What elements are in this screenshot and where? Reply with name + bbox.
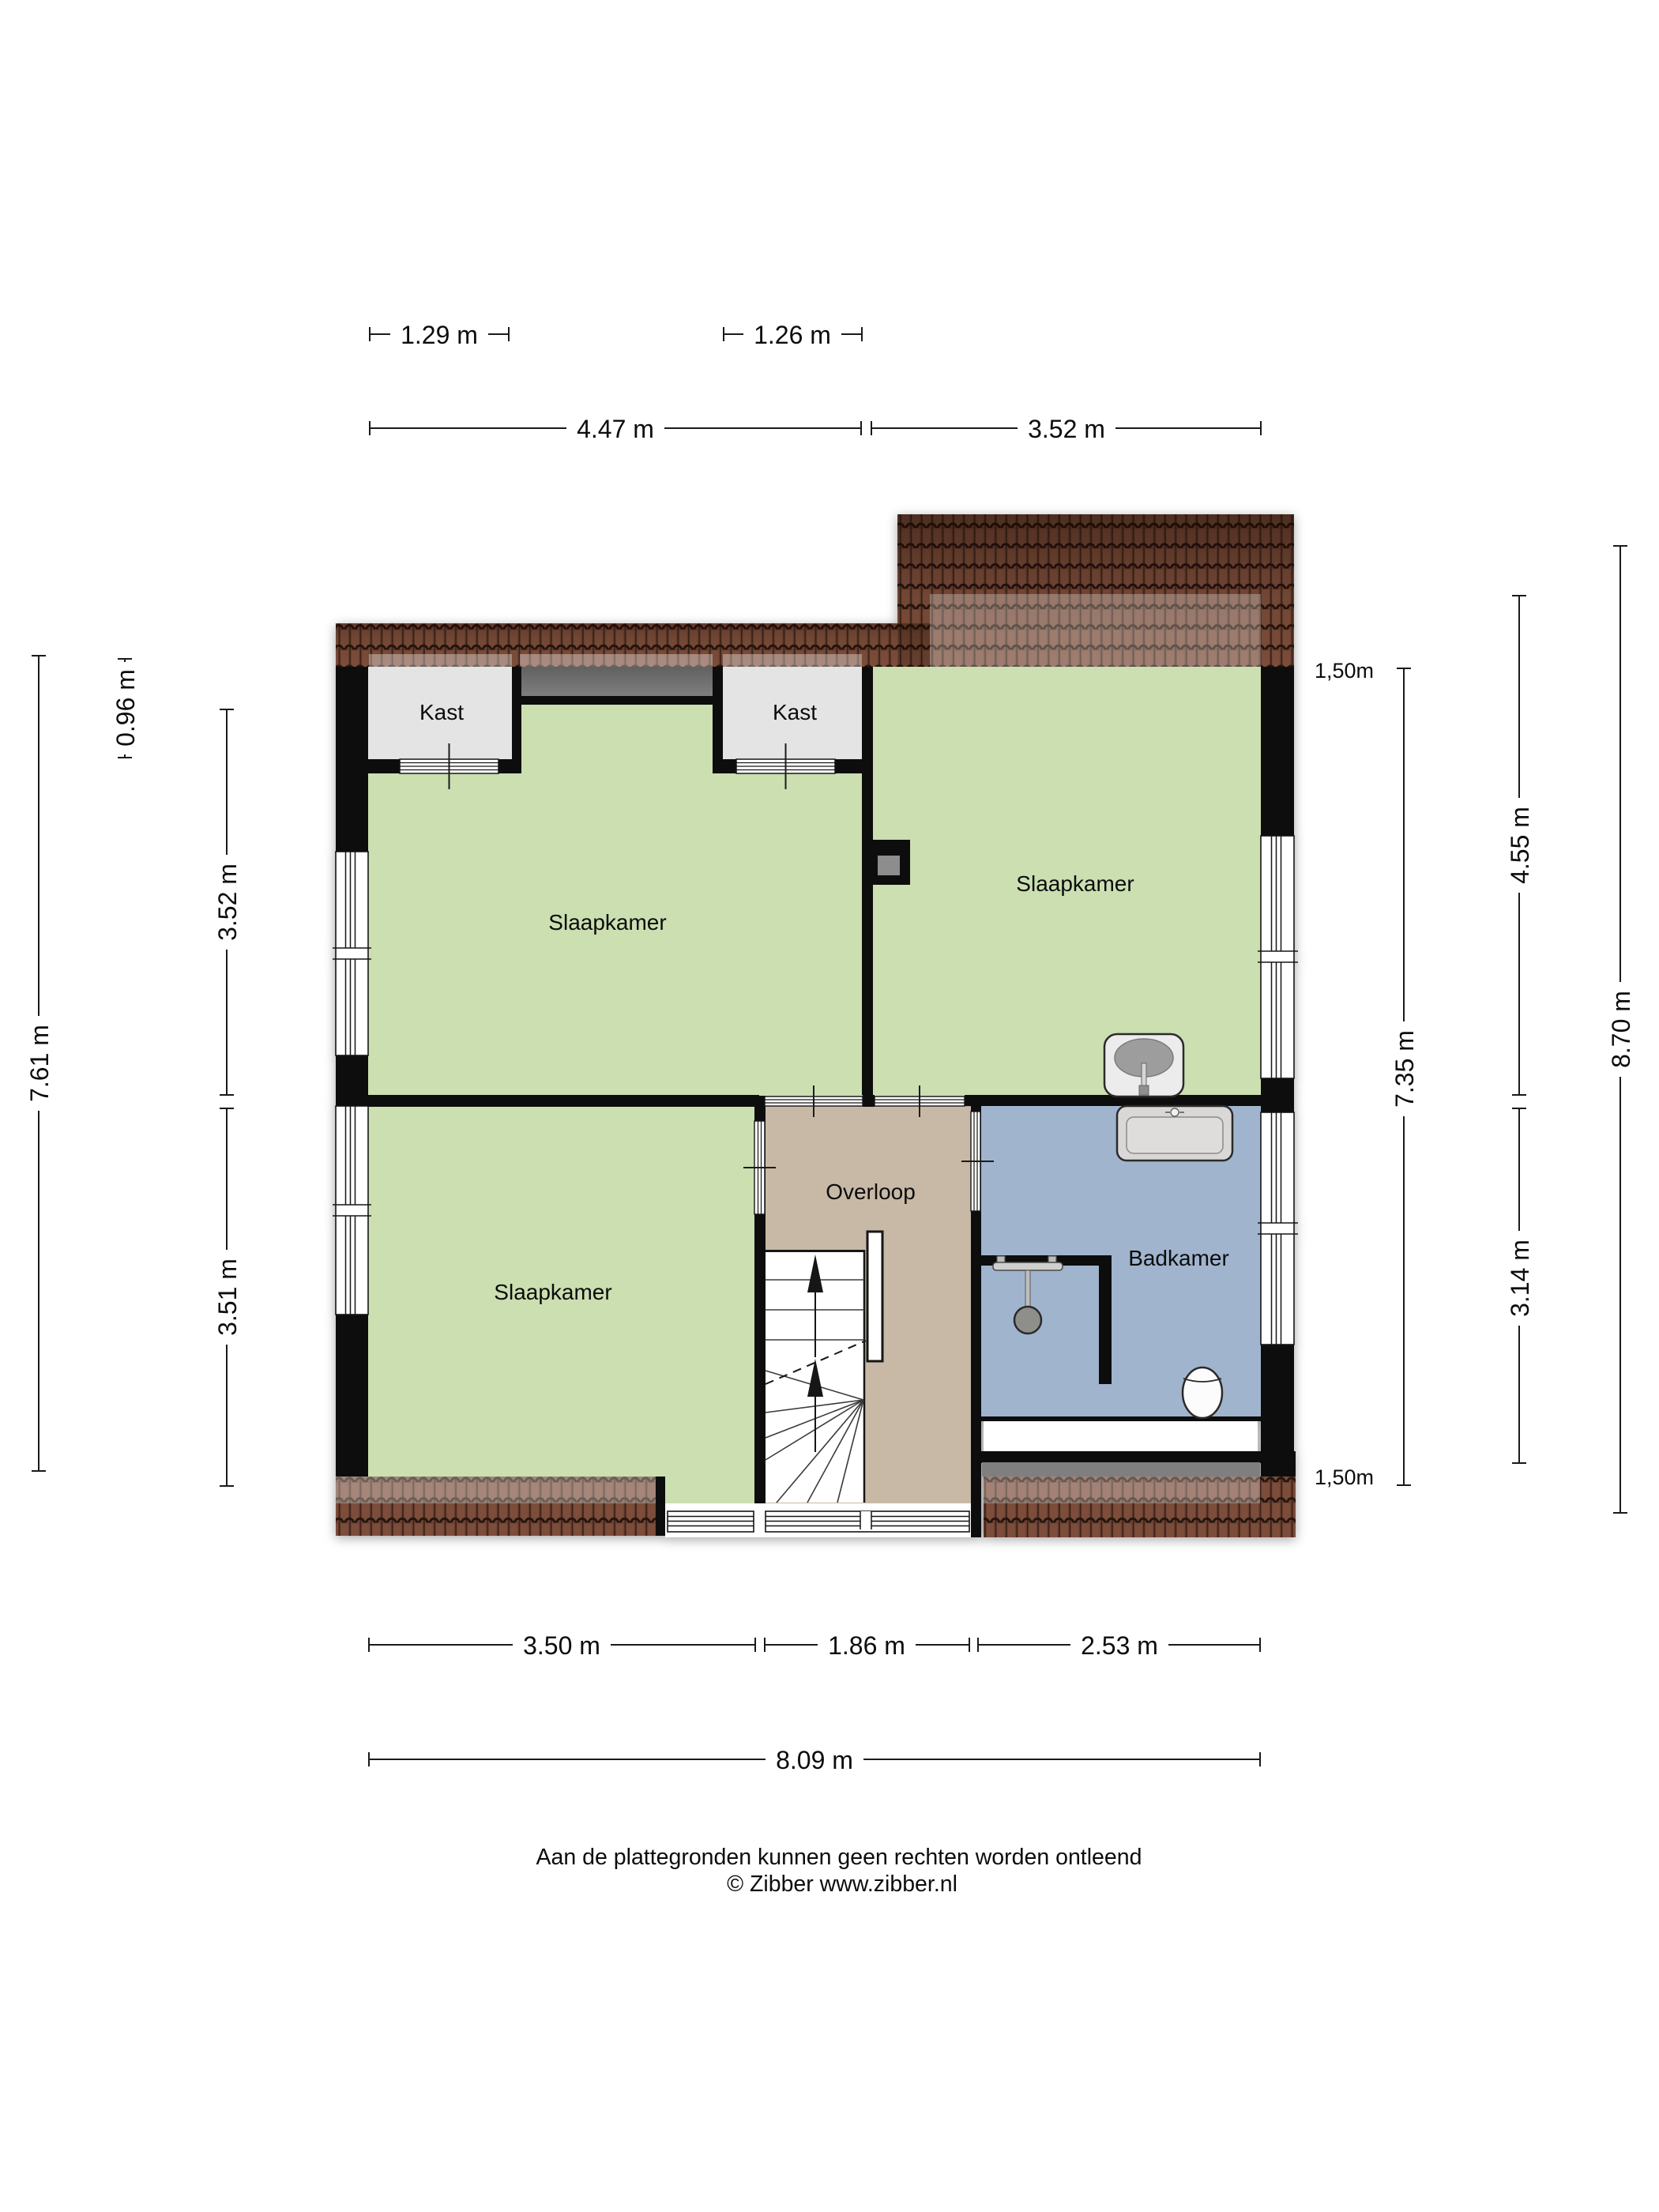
svg-text:1.29 m: 1.29 m bbox=[401, 321, 478, 349]
svg-text:7.61 m: 7.61 m bbox=[25, 1025, 54, 1102]
svg-text:Badkamer: Badkamer bbox=[1128, 1246, 1229, 1270]
svg-text:1,50m: 1,50m bbox=[1315, 1465, 1374, 1489]
svg-text:3.51 m: 3.51 m bbox=[213, 1258, 242, 1336]
svg-text:8.09 m: 8.09 m bbox=[776, 1746, 853, 1774]
svg-text:1,50m: 1,50m bbox=[1315, 659, 1374, 683]
svg-text:3.52 m: 3.52 m bbox=[213, 863, 242, 941]
svg-text:Kast: Kast bbox=[773, 700, 817, 724]
svg-text:4.47 m: 4.47 m bbox=[577, 415, 654, 443]
svg-text:© Zibber www.zibber.nl: © Zibber www.zibber.nl bbox=[727, 1872, 957, 1897]
svg-text:Kast: Kast bbox=[419, 700, 464, 724]
svg-text:4.55 m: 4.55 m bbox=[1506, 807, 1534, 884]
svg-text:3.14 m: 3.14 m bbox=[1506, 1240, 1534, 1317]
svg-text:7.35 m: 7.35 m bbox=[1390, 1030, 1419, 1108]
svg-text:2.53 m: 2.53 m bbox=[1081, 1631, 1158, 1660]
svg-text:3.52 m: 3.52 m bbox=[1028, 415, 1105, 443]
svg-text:3.50 m: 3.50 m bbox=[523, 1631, 600, 1660]
svg-text:Slaapkamer: Slaapkamer bbox=[548, 910, 666, 935]
svg-text:Aan de plattegronden kunnen ge: Aan de plattegronden kunnen geen rechten… bbox=[536, 1845, 1142, 1870]
svg-text:1.86 m: 1.86 m bbox=[828, 1631, 905, 1660]
svg-text:Overloop: Overloop bbox=[826, 1179, 916, 1204]
svg-text:Slaapkamer: Slaapkamer bbox=[1016, 871, 1134, 896]
svg-text:Slaapkamer: Slaapkamer bbox=[494, 1280, 611, 1304]
svg-text:0.96 m: 0.96 m bbox=[111, 669, 140, 747]
svg-text:8.70 m: 8.70 m bbox=[1607, 991, 1635, 1068]
svg-text:1.26 m: 1.26 m bbox=[754, 321, 831, 349]
